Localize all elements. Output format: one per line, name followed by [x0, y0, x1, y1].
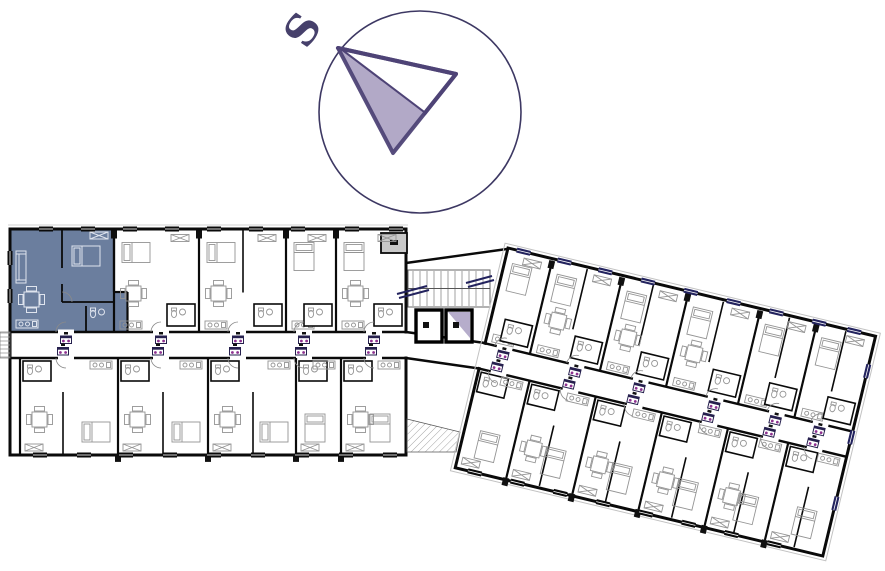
door-mark — [61, 344, 65, 347]
badge-dot — [372, 351, 375, 354]
badge-dot — [300, 340, 303, 343]
badge-cap — [366, 348, 377, 350]
building-wing-right — [450, 243, 880, 562]
window-icon — [339, 453, 353, 458]
window-icon — [383, 453, 397, 458]
apartment-unit[interactable] — [10, 231, 114, 333]
window-icon — [119, 453, 133, 458]
badge-cap — [156, 336, 167, 338]
badge-cap — [153, 348, 164, 350]
window-icon — [77, 453, 91, 458]
compass-rose: S — [274, 4, 521, 213]
badge-dot — [305, 340, 308, 343]
elevator-mark — [423, 322, 429, 328]
badge-cap — [296, 348, 307, 350]
badge-dot — [157, 340, 160, 343]
badge-dot — [62, 340, 65, 343]
window-icon — [207, 227, 221, 232]
window-icon — [389, 227, 403, 232]
badge-dot — [59, 351, 62, 354]
corridor-opening — [404, 334, 411, 357]
badge-cap — [299, 336, 310, 338]
door-mark — [64, 332, 68, 335]
badge-dot — [67, 340, 70, 343]
building-wing-left — [0, 225, 411, 462]
elevator-mark — [453, 322, 459, 328]
badge-dot — [375, 340, 378, 343]
badge-cap — [61, 336, 72, 338]
window-icon — [8, 251, 13, 265]
window-icon — [8, 289, 13, 303]
floor-plan-page: S — [0, 0, 885, 571]
badge-cap — [230, 348, 241, 350]
badge-dot — [367, 351, 370, 354]
badge-cap — [233, 336, 244, 338]
entrance-strip — [0, 332, 10, 358]
badge-dot — [370, 340, 373, 343]
door-mark — [369, 344, 373, 347]
door-mark — [299, 344, 303, 347]
door-mark — [372, 332, 376, 335]
badge-cap — [369, 336, 380, 338]
badge-dot — [162, 340, 165, 343]
window-icon — [249, 227, 263, 232]
window-icon — [39, 227, 53, 232]
wall-line — [406, 358, 479, 369]
badge-dot — [297, 351, 300, 354]
window-icon — [33, 453, 47, 458]
badge-dot — [239, 340, 242, 343]
wall-line — [406, 249, 507, 263]
badge-dot — [236, 351, 239, 354]
badge-dot — [302, 351, 305, 354]
door-mark — [236, 332, 240, 335]
door-mark — [233, 344, 237, 347]
window-icon — [207, 453, 221, 458]
compass-south-label: S — [274, 4, 332, 56]
door-mark — [159, 332, 163, 335]
badge-cap — [58, 348, 69, 350]
window-icon — [291, 227, 305, 232]
window-icon — [165, 227, 179, 232]
window-icon — [345, 227, 359, 232]
window-icon — [295, 453, 309, 458]
window-icon — [81, 227, 95, 232]
door-mark — [302, 332, 306, 335]
door-mark — [156, 344, 160, 347]
badge-dot — [234, 340, 237, 343]
window-icon — [251, 453, 265, 458]
window-icon — [123, 227, 137, 232]
badge-dot — [231, 351, 234, 354]
badge-dot — [159, 351, 162, 354]
badge-dot — [64, 351, 67, 354]
badge-dot — [154, 351, 157, 354]
balcony-hatch — [407, 419, 460, 452]
window-icon — [163, 453, 177, 458]
floor-plan-drawing: S — [0, 0, 885, 571]
